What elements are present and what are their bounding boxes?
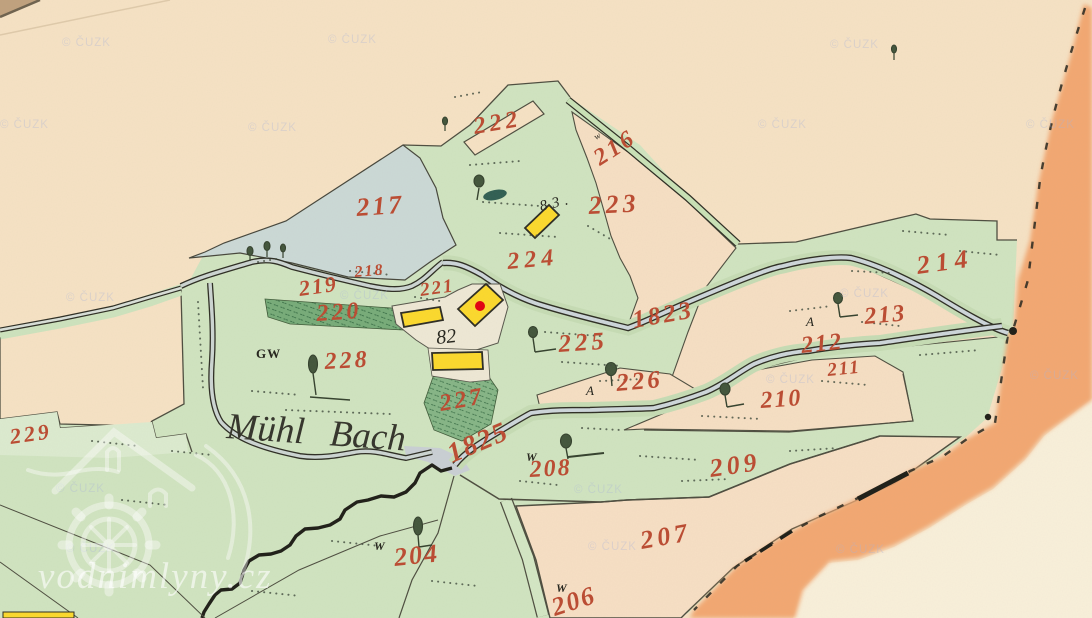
svg-text:vodnimlyny.cz: vodnimlyny.cz	[38, 556, 273, 597]
